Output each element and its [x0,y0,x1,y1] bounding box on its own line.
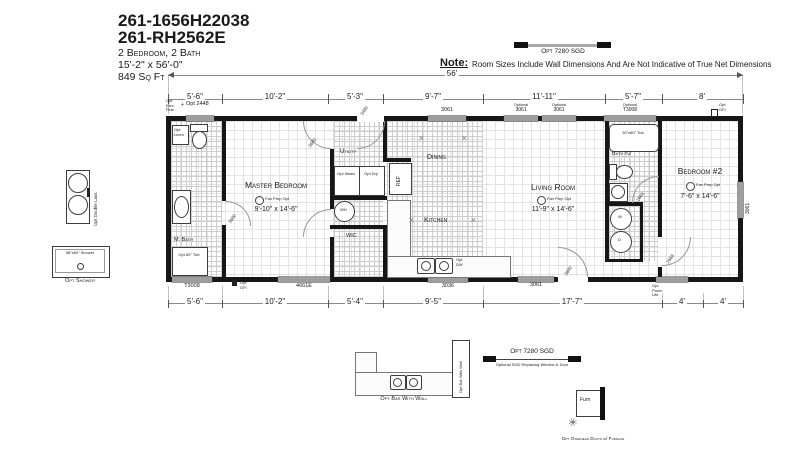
gfi-bottom-label: Opt GFI [240,281,252,290]
bath2-toilet-bowl [616,165,633,179]
wall-bed2-3 [658,267,662,277]
water-heater-label: WH [340,208,347,213]
dim-top-3: 5'-3" [345,92,365,101]
stack-dryer [610,231,632,253]
window-3061-dining [428,116,466,121]
window-t3008-bottom [172,277,212,282]
gfi-top-label: Opt GFI [719,103,731,112]
window-bedroom2-bottom [656,277,688,282]
fan-prep-icon-living [537,196,546,205]
ceiling-light-icon: ✕ [408,216,415,225]
opt-washer-label: Opt Wash [337,172,355,177]
mbath-opt-tub-label: Opt 60" Tub [175,253,203,258]
dim-bottom-3: 5'-4" [345,297,365,306]
model-number-2: 261-RH2562E [118,29,226,47]
dim-top-2: 10'-2" [263,92,287,101]
top-dim-line [168,99,743,100]
wall-utility-bottom [330,196,387,200]
sgd-top-glass [528,44,597,47]
wall-master-2 [330,237,334,277]
fan-prep-label-master: Fan Prep Opt [265,197,287,202]
wall-mbath-2 [222,225,226,277]
ceiling-light-icon: ✕ [470,216,477,225]
sgd-top-bar-left [514,42,528,48]
dim-top-7: 8' [697,92,707,101]
dim-top-4: 9'-7" [423,92,443,101]
wall-bed2-2 [658,202,662,237]
window-opt-t3008 [604,116,656,121]
opt-elec-flue-label: Opt Elec Flue [166,99,180,113]
window-2448 [186,116,214,121]
room-label-kitchen: Kitchen [424,217,447,224]
shower-drain [77,263,84,270]
window-opt-3061-a-label: 3061 [515,108,526,113]
furnace-box [576,390,601,417]
window-3036-label: 3036 [442,284,454,290]
note-label: Note: [440,58,468,70]
opt-bar-wall-vertical-label: Opt Bar With Wall [459,361,463,393]
gfi-outlet-icon-top [711,109,718,117]
double-lav-divider [87,188,90,197]
opt-shower-size-label: 36"x60" Shower [65,251,95,256]
bar-sink-bowl [409,378,418,387]
sgd-bottom-line [487,359,577,360]
dim-bottom-1: 5'-6" [185,297,205,306]
furnace-wall [600,387,605,420]
room-size-master-bedroom: 9'-10" x 14'-6" [254,206,297,213]
plus-sign: + [181,103,184,108]
wall-mbath-1 [222,121,226,201]
dim-top-1: 5'-6" [185,92,205,101]
window-opt-3061-b-label: 3061 [553,108,564,113]
spec-area: 849 Sq Ft [118,72,165,83]
dim-bottom-5: 17'-7" [560,297,584,306]
spec-beds-baths: 2 Bedroom, 2 Bath [118,48,200,59]
bath2-tub [609,124,659,152]
room-label-bath2: Bath #2 [612,152,631,158]
sgd-bottom-bar-right [568,356,581,362]
room-label-wic: WIC [346,234,357,240]
wall-ref-stub [383,158,411,162]
window-3061-right-label: 3061 [746,203,751,214]
window-opt-3061-a [504,116,538,121]
window-3061-right [738,182,743,218]
porch-lite-label: Opt Porch Lite [652,284,666,298]
ceiling-light-icon: ✕ [461,134,468,143]
wall-wic-top [330,225,387,229]
bath2-tub-label: 30"x60" Tub [618,131,648,136]
wall-wd-right [640,202,643,262]
window-2448-label: Opt 2448 [186,102,209,108]
furnace-note: Opt Overhead Ducts w/ Furnace [562,437,625,442]
window-3061-dining-label: 3061 [441,108,453,114]
bath2-sink [611,185,625,199]
duct-fan-icon: ✳ [566,415,579,430]
stack-dryer-label: D [618,238,621,243]
opt-dishwasher-label: Opt DW [456,258,468,267]
dim-bottom-7: 4' [718,297,728,306]
fan-prep-label-bedroom2: Fan Prep Opt [696,183,718,188]
floorplan-page: 261-1656H22038 261-RH2562E 2 Bedroom, 2 … [0,0,800,458]
stack-washer-label: W [618,215,622,220]
dim-top-5: 11'-11" [530,92,558,101]
room-label-master-bedroom: Master Bedroom [245,181,307,190]
spec-size: 15'-2" x 56'-0" [118,60,183,71]
kitchen-sink-bowl [439,261,449,271]
window-4661e-label: 4661E [296,284,312,290]
double-lav-bowl-2 [68,195,88,215]
window-3061-living-label: 3061 [530,283,542,289]
dim-top-6: 5'-7" [623,92,643,101]
gfi-outlet-icon-bottom [232,280,237,286]
kitchen-sink-bowl [421,261,431,271]
room-label-living-room: Living Room [531,183,575,192]
sgd-top-label: Opt 7280 SGD [541,49,585,56]
window-opt-t3008-label: T3008 [623,108,637,113]
room-label-dining: Dining [427,154,446,161]
window-4661e [278,277,330,282]
room-label-utility: Utility [340,149,356,155]
room-size-bedroom2: 7'-6" x 14'-6" [680,193,719,200]
dim-bottom-6: 4' [677,297,687,306]
dim-bottom-2: 10'-2" [263,297,287,306]
double-lav-bowl-1 [68,173,88,193]
opt-shower-label: Opt Shower [65,279,95,285]
bar-sink-bowl [393,378,402,387]
window-t3008-bottom-label: T3008 [184,284,200,290]
refrigerator-label: REF [397,176,402,186]
room-label-bedroom2: Bedroom #2 [678,167,723,176]
kitchen-counter-left [387,200,411,258]
opt-double-lavs-label: Opt Double Lavs [94,192,99,226]
room-size-living-room: 11'-9" x 14'-6" [532,206,575,213]
fan-prep-label-living: Fan Prep Opt [547,197,569,202]
dim-bottom-4: 9'-5" [423,297,443,306]
wall-left [166,116,171,282]
opt-dryer-label: Opt Dry [362,172,380,177]
sgd-bottom-title: Opt 7280 SGD [510,349,554,356]
wall-wd-bottom [605,259,643,262]
room-label-mbath: M. Bath [174,238,193,244]
rear-door-gap [558,276,588,283]
mbath-toilet-bowl [192,131,207,149]
mbath-sink [174,196,189,218]
fan-prep-icon-bedroom2 [686,182,695,191]
sgd-bottom-bar-left [483,356,496,362]
sgd-top-bar-right [597,42,611,48]
opt-linen-label: Opt Linen [174,128,186,137]
opt-bar-label: Opt Bar With Wall [380,397,427,403]
window-opt-3061-b [542,116,576,121]
overall-dim-label: 56' [445,69,459,78]
ceiling-light-icon: ✕ [418,134,425,143]
bottom-dim-line [168,303,743,304]
furnace-label: Furn [580,398,590,403]
note-text: Room Sizes Include Wall Dimensions And A… [472,61,771,69]
fan-prep-icon-master [255,196,264,205]
sgd-bottom-subtitle: Optional SGD Replacing Window & Door [496,363,568,367]
